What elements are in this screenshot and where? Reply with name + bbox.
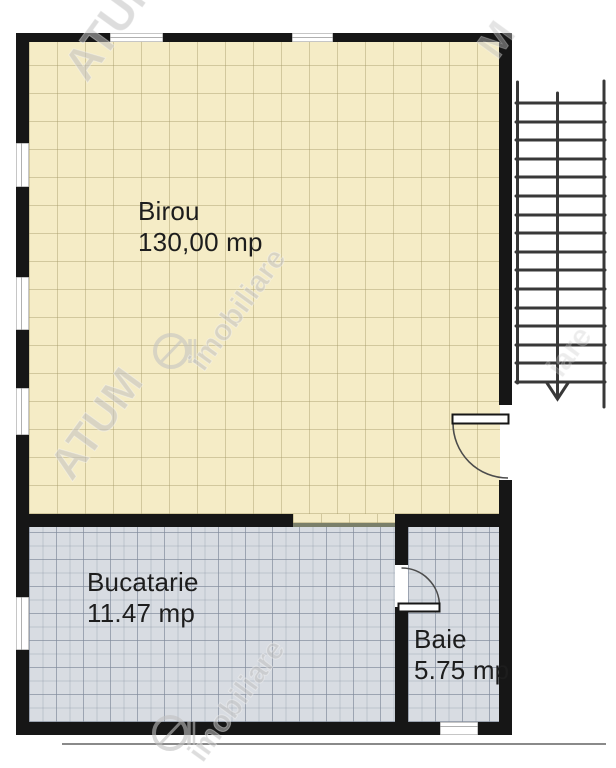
wall-divider-horizontal-left <box>16 514 293 527</box>
baie-area: 5.75 mp <box>414 655 509 686</box>
staircase <box>516 81 605 407</box>
watermark-company-partial-stairs: iare <box>541 320 600 383</box>
baie-name: Baie <box>414 624 509 655</box>
room-label-birou: Birou 130,00 mp <box>138 196 263 258</box>
room-bucatarie-floor <box>29 527 395 722</box>
floor-plan: ATUM M ATUM imobiliare imobiliare iare B… <box>0 0 616 768</box>
wall-top <box>16 33 512 42</box>
birou-name: Birou <box>138 196 263 227</box>
room-birou-floor <box>29 42 500 514</box>
window-left-1 <box>16 143 29 187</box>
wall-baie-upper <box>395 514 408 565</box>
stair-steps <box>516 103 605 382</box>
bucatarie-name: Bucatarie <box>87 567 199 598</box>
window-left-3 <box>16 388 29 435</box>
window-left-4 <box>16 597 29 650</box>
passage-floor-strip <box>293 514 395 523</box>
window-top-2 <box>292 33 333 42</box>
wall-right-upper <box>499 33 512 405</box>
window-bottom-1 <box>440 722 478 735</box>
wall-baie-lower <box>395 607 408 722</box>
wall-divider-horizontal-right <box>395 514 512 527</box>
window-top-1 <box>110 33 163 42</box>
birou-area: 130,00 mp <box>138 227 263 258</box>
window-left-2 <box>16 277 29 330</box>
room-label-bucatarie: Bucatarie 11.47 mp <box>87 567 199 629</box>
wall-bottom <box>16 722 512 735</box>
room-label-baie: Baie 5.75 mp <box>414 624 509 686</box>
bucatarie-area: 11.47 mp <box>87 598 199 629</box>
stair-down-arrow-icon <box>547 383 568 399</box>
